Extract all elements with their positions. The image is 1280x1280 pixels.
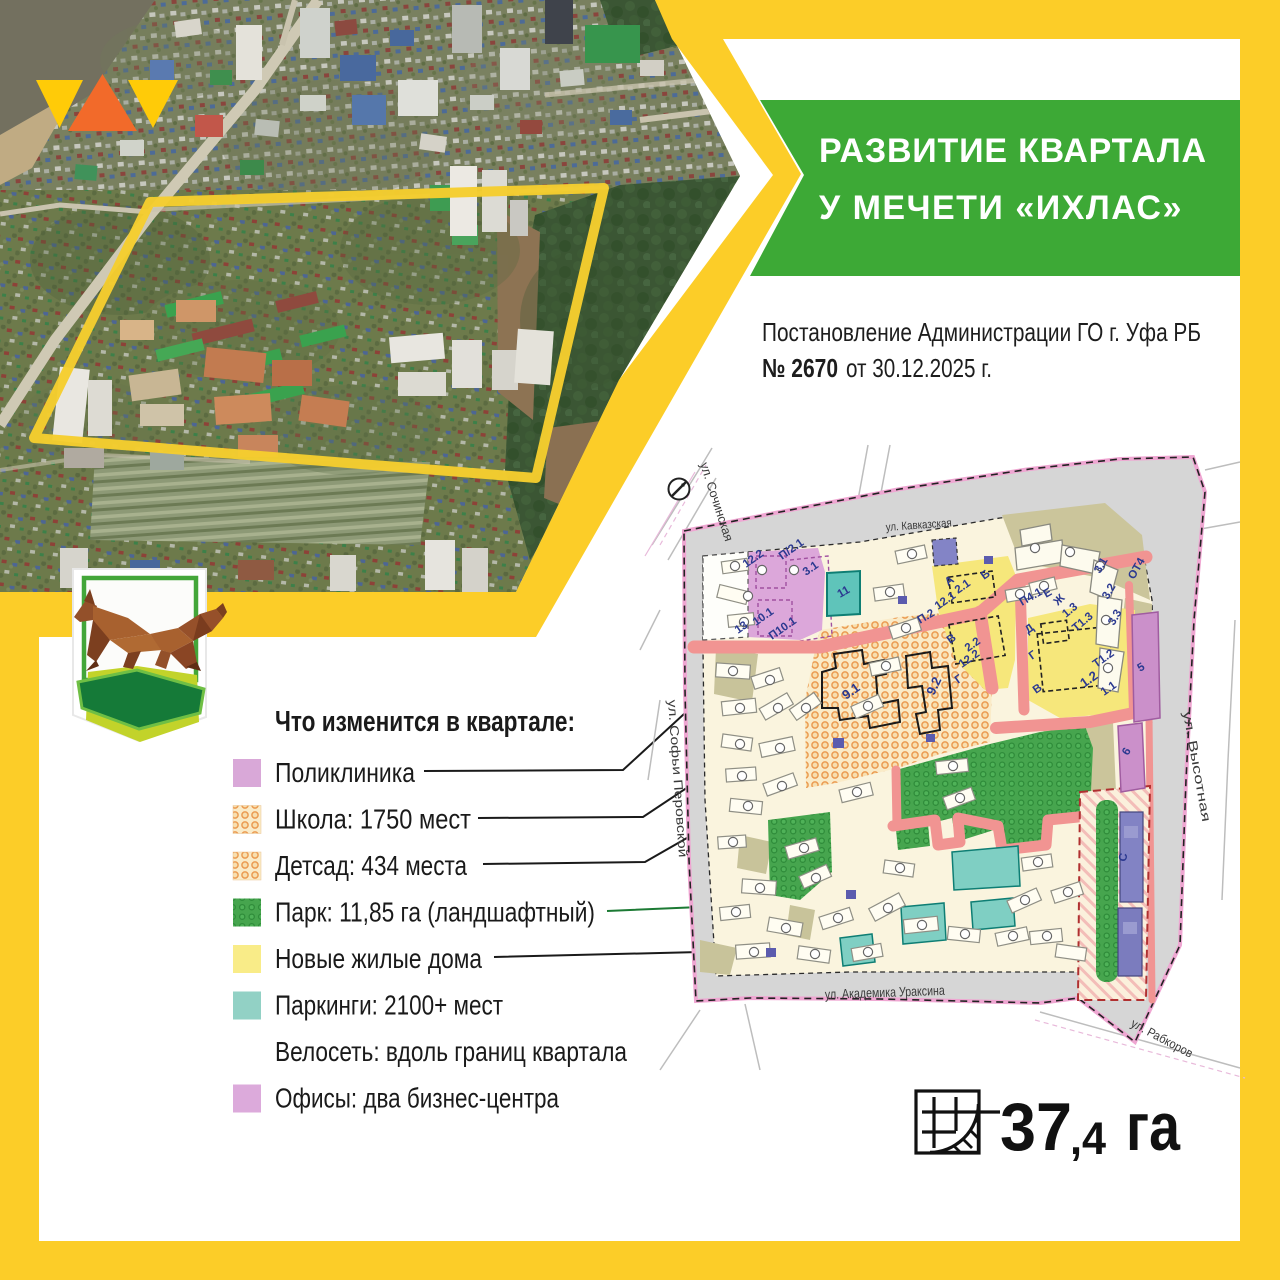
svg-text:га: га xyxy=(1126,1089,1181,1165)
svg-text:Постановление Администрации ГО: Постановление Администрации ГО г. Уфа РБ xyxy=(762,317,1201,347)
svg-text:Школа: 1750 мест: Школа: 1750 мест xyxy=(275,804,471,835)
svg-text:37: 37 xyxy=(1000,1089,1072,1165)
svg-text:от 30.12.2025 г.: от 30.12.2025 г. xyxy=(846,353,992,383)
svg-text:РАЗВИТИЕ КВАРТАЛА: РАЗВИТИЕ КВАРТАЛА xyxy=(819,132,1207,170)
svg-text:Детсад: 434 места: Детсад: 434 места xyxy=(275,850,467,881)
svg-text:Парк: 11,85 га (ландшафтный): Парк: 11,85 га (ландшафтный) xyxy=(275,897,595,928)
svg-text:,4: ,4 xyxy=(1070,1113,1106,1164)
svg-text:№ 2670: № 2670 xyxy=(762,353,838,383)
svg-text:Офисы: два бизнес-центра: Офисы: два бизнес-центра xyxy=(275,1083,559,1114)
svg-text:Паркинги: 2100+ мест: Паркинги: 2100+ мест xyxy=(275,990,503,1021)
svg-text:Поликлиника: Поликлиника xyxy=(275,757,415,788)
svg-text:Что изменится в квартале:: Что изменится в квартале: xyxy=(275,706,575,738)
svg-text:Велосеть: вдоль границ квартал: Велосеть: вдоль границ квартала xyxy=(275,1036,627,1067)
svg-text:У МЕЧЕТИ «ИХЛАС»: У МЕЧЕТИ «ИХЛАС» xyxy=(819,189,1183,227)
svg-text:Новые жилые дома: Новые жилые дома xyxy=(275,943,482,974)
